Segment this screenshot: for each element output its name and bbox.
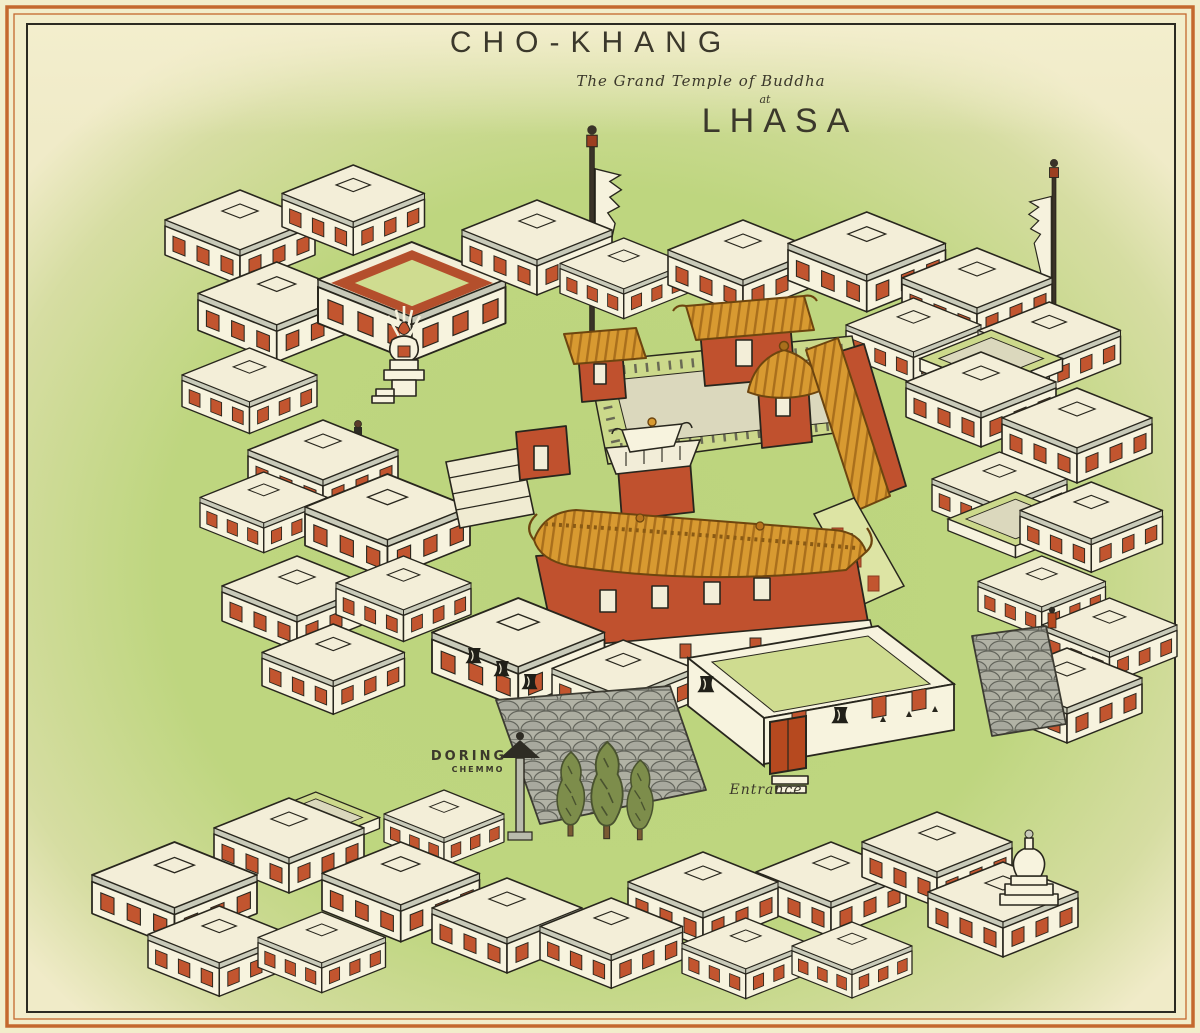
entrance-steps: [772, 776, 808, 784]
illustrated-map-page: CHO-KHANG The Grand Temple of Buddha at …: [0, 0, 1200, 1033]
golden-roof: [564, 328, 646, 364]
red-robed-figure: [1048, 607, 1056, 628]
map-illustration: [0, 0, 1200, 1033]
